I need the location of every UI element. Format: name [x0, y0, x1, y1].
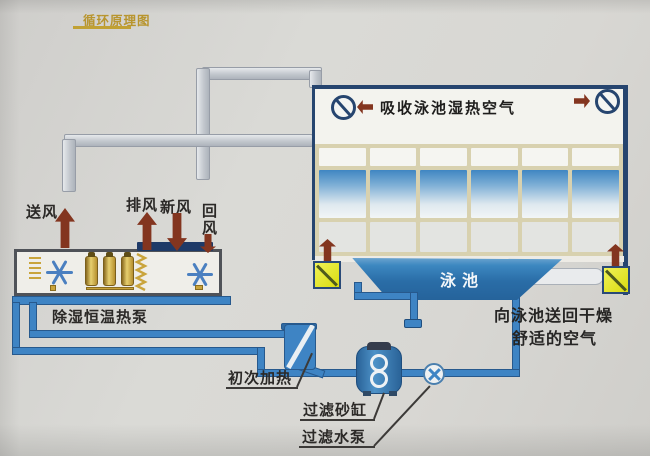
unit-fitting-bar: [86, 287, 134, 290]
glass-tile: [420, 148, 467, 166]
pipe-to-heater: [29, 330, 286, 338]
filter-pump-label: 过滤水泵: [302, 426, 366, 447]
title-underline: [73, 26, 131, 29]
tank-foot-left: [363, 391, 371, 396]
filter-pump-icon: [423, 363, 445, 385]
glass-tile: [522, 222, 569, 252]
glass-tile: [471, 222, 518, 252]
initial-heating-label: 初次加热: [228, 367, 292, 388]
pipe-left-outer-horizontal: [12, 347, 265, 355]
absorb-humid-air-label: 吸收泳池湿热空气: [380, 97, 516, 118]
sand-filter-leader: [373, 393, 385, 420]
sand-filter-tank: [356, 346, 402, 394]
glass-tile: [522, 148, 569, 166]
glass-tile: [522, 170, 569, 218]
compressor-icon-3: [121, 256, 134, 286]
unit-base-pipe: [12, 296, 231, 305]
return-air-label: 回风: [198, 203, 219, 237]
glass-tile: [572, 148, 619, 166]
pipe-pool-side-horizontal: [354, 292, 418, 300]
unit-fitting-right: [195, 285, 203, 290]
glass-tile: [420, 222, 467, 252]
unit-fan-icon-right: [187, 261, 213, 287]
pool-room-right-wall: [623, 85, 628, 295]
duct-mid-horizontal: [64, 134, 313, 147]
glass-tile: [572, 170, 619, 218]
initial-heater: [284, 324, 316, 370]
supply-grille-icon-right: [602, 266, 630, 294]
glass-tile: [420, 170, 467, 218]
supply-grille-icon-left: [313, 261, 341, 289]
duct-left-vertical: [62, 139, 76, 192]
initial-heating-underline: [226, 387, 298, 389]
glass-tile: [319, 148, 366, 166]
duct-middle-vertical: [196, 68, 210, 180]
unit-fan-icon-left: [46, 259, 73, 286]
compressor-icon-1: [85, 256, 98, 286]
pool-side-valve-icon: [404, 319, 422, 328]
unit-fitting-left: [50, 285, 56, 291]
exhaust-fan-icon-left: [331, 95, 356, 120]
tank-foot-right: [389, 391, 397, 396]
glass-tile: [370, 170, 417, 218]
glass-tile: [471, 170, 518, 218]
heat-pump-label: 除湿恒温热泵: [52, 306, 148, 327]
pipe-pool-side-drop: [410, 292, 418, 322]
glass-tile: [370, 148, 417, 166]
pool-room-top-wall: [312, 85, 628, 89]
sand-filter-underline: [300, 419, 375, 421]
sand-filter-label: 过滤砂缸: [303, 399, 367, 420]
tank-cap: [367, 342, 391, 350]
pool-label: 泳池: [348, 267, 562, 291]
send-back-air-label-line1: 向泳池送回干燥: [494, 302, 613, 326]
supply-air-label: 送风: [26, 201, 58, 222]
evaporator-coil-icon: [29, 257, 41, 279]
tank-port-bottom: [370, 370, 388, 388]
heating-coil-icon: [134, 253, 148, 291]
send-back-air-label-line2: 舒适的空气: [512, 325, 597, 349]
diagram-photo: 循环原理图 吸收泳池湿热空气 泳池 除湿恒温热泵 送风 排风 新风: [0, 0, 650, 456]
exhaust-air-label: 排风: [126, 194, 158, 215]
glass-wall: [315, 144, 623, 256]
compressor-icon-2: [103, 256, 116, 286]
glass-tile: [319, 170, 366, 218]
filter-pump-underline: [299, 446, 375, 448]
glass-tile: [471, 148, 518, 166]
exhaust-fan-icon-right: [595, 89, 620, 114]
glass-tile: [370, 222, 417, 252]
duct-top-horizontal: [202, 67, 322, 80]
